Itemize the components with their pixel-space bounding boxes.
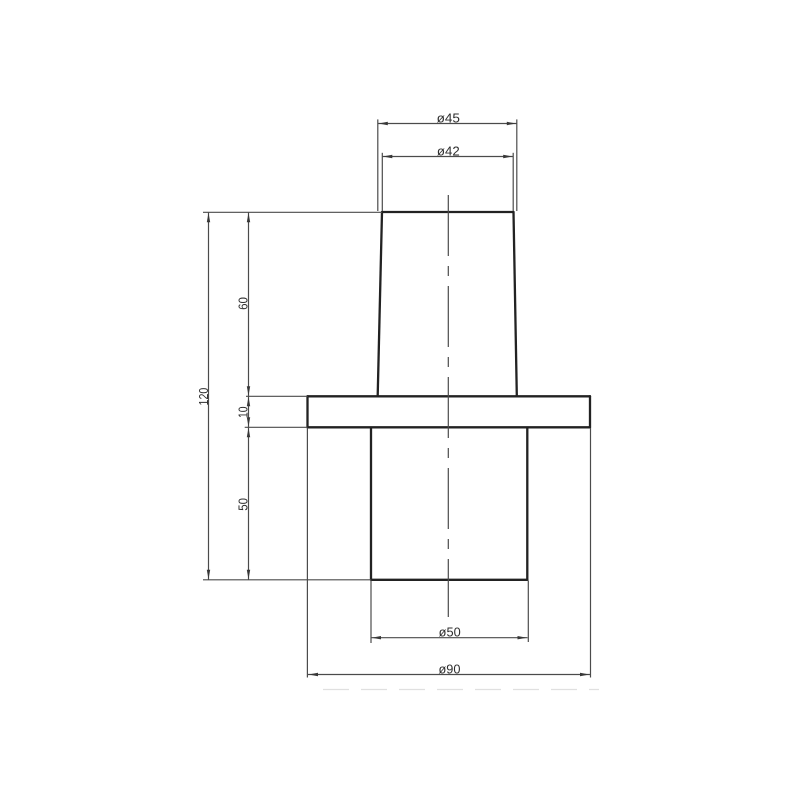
svg-text:60: 60 <box>237 297 251 310</box>
svg-text:ø42: ø42 <box>437 144 460 158</box>
svg-text:10: 10 <box>237 406 251 418</box>
svg-text:ø90: ø90 <box>439 662 461 676</box>
svg-text:ø45: ø45 <box>437 111 460 125</box>
svg-text:120: 120 <box>197 388 211 406</box>
svg-text:50: 50 <box>237 498 251 511</box>
svg-text:ø50: ø50 <box>439 626 461 640</box>
